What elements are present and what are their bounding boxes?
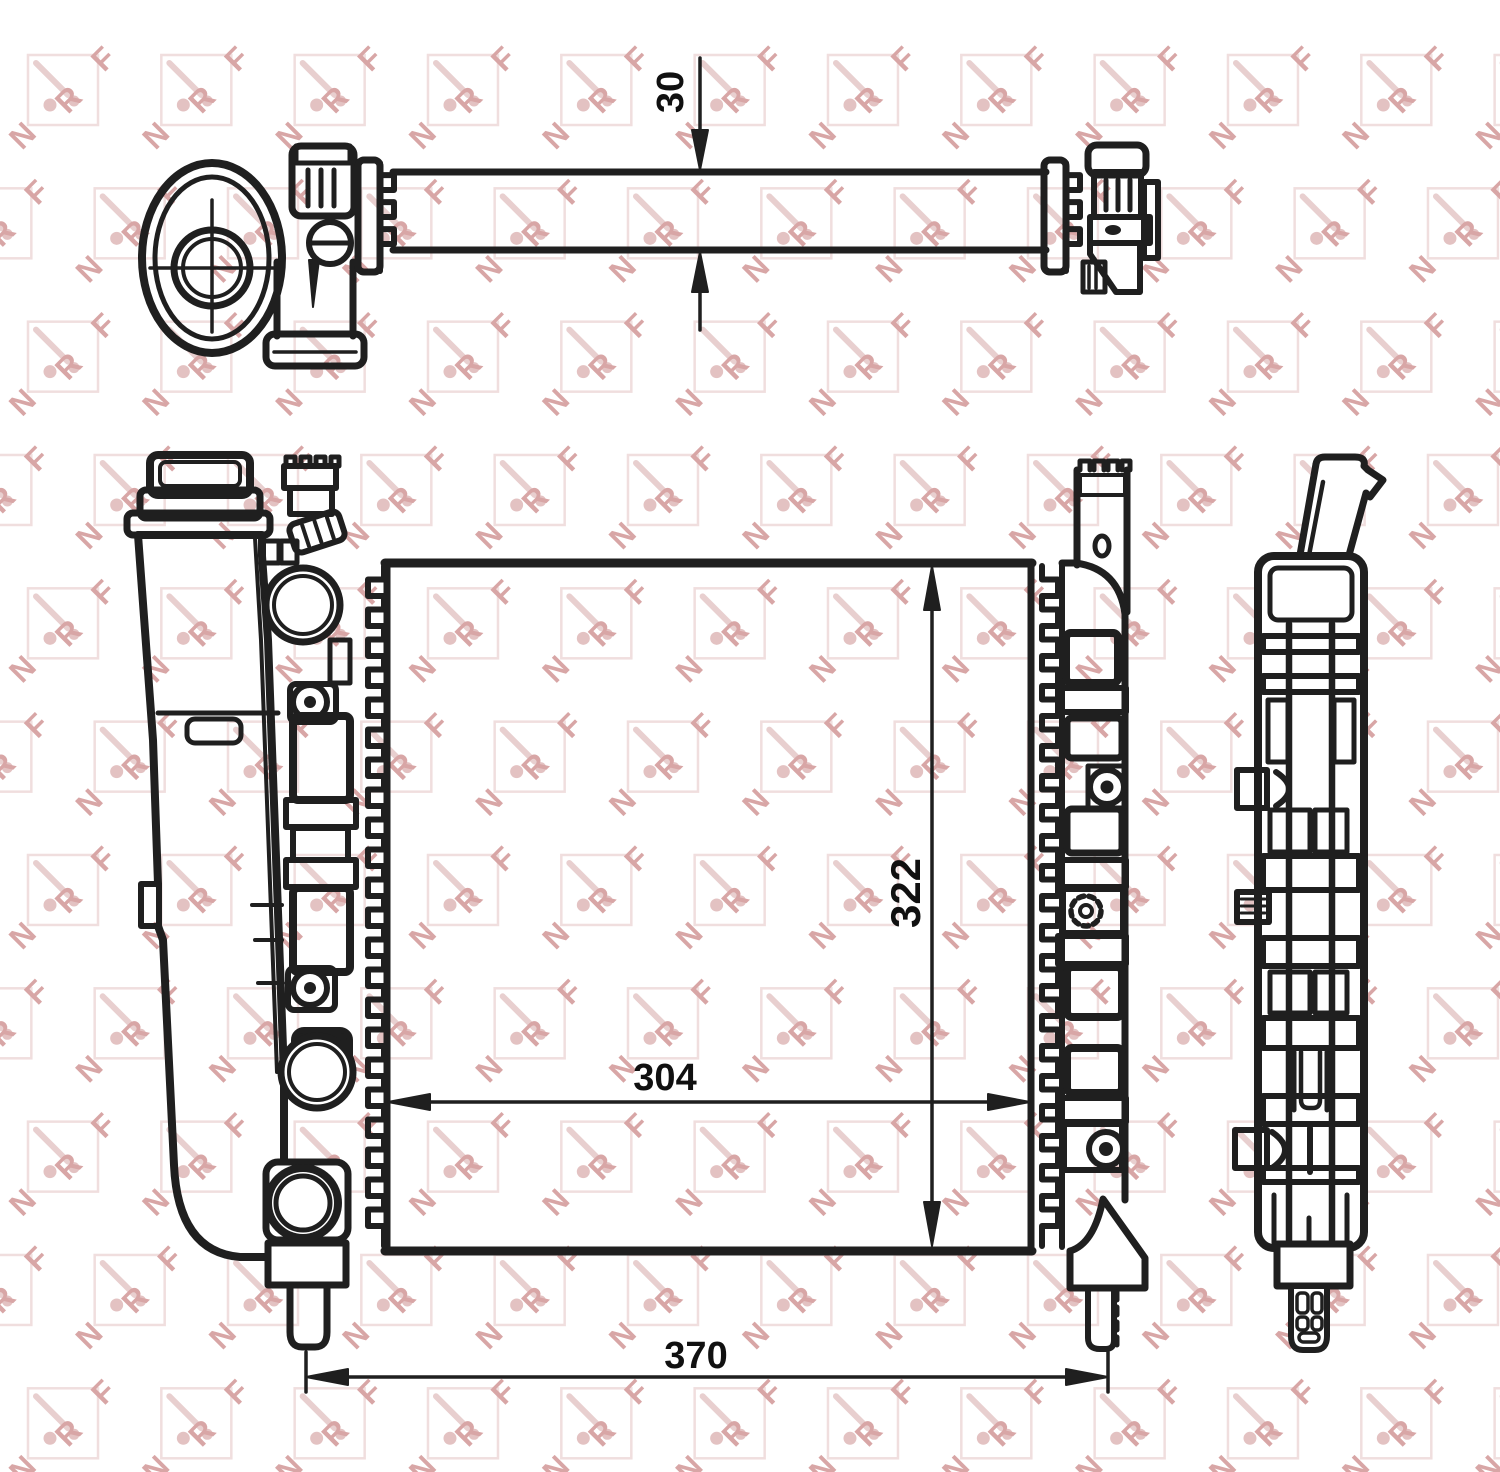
watermark-tile bbox=[1069, 1373, 1189, 1472]
watermark-tile bbox=[469, 1240, 589, 1356]
watermark-tile bbox=[536, 40, 656, 156]
watermark-tile bbox=[402, 1106, 522, 1222]
watermark-tile bbox=[136, 306, 256, 422]
arrow-down-icon bbox=[924, 1202, 940, 1246]
watermark-tile bbox=[0, 973, 56, 1089]
watermark-tile bbox=[936, 573, 1056, 689]
watermark-tile bbox=[869, 706, 989, 822]
watermark-tile bbox=[736, 440, 856, 556]
watermark-tile bbox=[536, 1106, 656, 1222]
watermark-tile bbox=[869, 173, 989, 289]
arrow-up-icon bbox=[924, 566, 940, 610]
watermark-tile bbox=[669, 306, 789, 422]
watermark-tile bbox=[1336, 306, 1456, 422]
watermark-tile bbox=[736, 173, 856, 289]
arrow-right-icon bbox=[1066, 1369, 1108, 1385]
radiator-technical-drawing-page: N R F bbox=[0, 0, 1500, 1472]
watermark-tile bbox=[1469, 1106, 1500, 1222]
watermark-tile bbox=[136, 1373, 256, 1472]
watermark-tile bbox=[136, 40, 256, 156]
watermark-tile bbox=[1402, 973, 1500, 1089]
watermark-tile bbox=[869, 440, 989, 556]
right-pin bbox=[1088, 1288, 1114, 1349]
watermark-tile bbox=[402, 840, 522, 956]
watermark-tile bbox=[1136, 973, 1256, 1089]
watermark-tile bbox=[0, 1240, 56, 1356]
watermark-tile bbox=[736, 706, 856, 822]
side-foot-plate bbox=[1277, 1244, 1350, 1286]
watermark-tile bbox=[869, 973, 989, 1089]
watermark-tile bbox=[469, 973, 589, 1089]
arrow-left-icon bbox=[388, 1094, 430, 1110]
watermark-tile bbox=[1469, 306, 1500, 422]
watermark-tile bbox=[1469, 840, 1500, 956]
watermark-tile bbox=[336, 1240, 456, 1356]
watermark-tile bbox=[2, 1106, 122, 1222]
watermark-tile bbox=[536, 1373, 656, 1472]
watermark-tile bbox=[669, 573, 789, 689]
watermark-tile bbox=[2, 40, 122, 156]
watermark-tile bbox=[269, 1373, 389, 1472]
watermark-tile bbox=[869, 1240, 989, 1356]
watermark-tile bbox=[1336, 1373, 1456, 1472]
watermark-tile bbox=[936, 40, 1056, 156]
dimension-depth-label: 30 bbox=[650, 71, 692, 113]
outlet-funnel bbox=[1070, 1199, 1145, 1288]
watermark-tile bbox=[336, 440, 456, 556]
watermark-tile bbox=[536, 306, 656, 422]
watermark-tile bbox=[136, 1106, 256, 1222]
arrow-right-icon bbox=[988, 1094, 1030, 1110]
watermark-tile bbox=[802, 1373, 922, 1472]
watermark-tile bbox=[136, 573, 256, 689]
watermark-tile bbox=[69, 706, 189, 822]
watermark-tile bbox=[1136, 1240, 1256, 1356]
watermark-tile bbox=[402, 306, 522, 422]
watermark-tile bbox=[536, 573, 656, 689]
watermark-tile bbox=[2, 306, 122, 422]
watermark-tile bbox=[69, 1240, 189, 1356]
watermark-tile bbox=[2, 840, 122, 956]
watermark-tile bbox=[936, 840, 1056, 956]
watermark-tile bbox=[936, 1106, 1056, 1222]
watermark-tile bbox=[802, 573, 922, 689]
watermark-tile bbox=[1069, 40, 1189, 156]
watermark-tile bbox=[736, 1240, 856, 1356]
dimension-core-height: 322 bbox=[882, 566, 940, 1246]
watermark-tile bbox=[469, 440, 589, 556]
watermark-tile bbox=[936, 306, 1056, 422]
watermark-tile bbox=[602, 706, 722, 822]
watermark-tile bbox=[1202, 306, 1322, 422]
watermark-tile bbox=[936, 1373, 1056, 1472]
watermark-tile bbox=[1202, 1373, 1322, 1472]
watermark-tile bbox=[1402, 440, 1500, 556]
watermark-tile bbox=[1136, 440, 1256, 556]
watermark-tile bbox=[402, 573, 522, 689]
watermark-tile bbox=[402, 40, 522, 156]
watermark-tile bbox=[802, 1106, 922, 1222]
arrow-left-icon bbox=[306, 1369, 348, 1385]
watermark-tile bbox=[1469, 40, 1500, 156]
watermark-tile bbox=[736, 973, 856, 1089]
side-view bbox=[1235, 457, 1383, 1350]
watermark-tile bbox=[1336, 40, 1456, 156]
dimension-overall-width: 370 bbox=[306, 1335, 1108, 1392]
watermark-tile bbox=[2, 1373, 122, 1472]
watermark-tile bbox=[802, 306, 922, 422]
watermark-tile bbox=[669, 840, 789, 956]
watermark-tile bbox=[1469, 1373, 1500, 1472]
watermark-tile bbox=[2, 573, 122, 689]
drain-port bbox=[281, 1036, 353, 1108]
watermark-tile bbox=[602, 440, 722, 556]
watermark-tile bbox=[269, 40, 389, 156]
watermark-tile bbox=[1069, 306, 1189, 422]
watermark-tile bbox=[1136, 173, 1256, 289]
radiator-technical-drawing: N R F bbox=[0, 0, 1500, 1472]
watermark-tile bbox=[1402, 173, 1500, 289]
watermark-tile bbox=[0, 440, 56, 556]
inlet-hose-clamp bbox=[292, 146, 354, 307]
watermark-tile bbox=[802, 40, 922, 156]
watermark-tile bbox=[469, 173, 589, 289]
left-pin-base bbox=[268, 1243, 346, 1285]
right-serrated-seam bbox=[1042, 566, 1058, 1246]
upper-hose-port bbox=[266, 568, 340, 642]
dimension-overall-width-label: 370 bbox=[664, 1335, 727, 1377]
dimension-core-width-label: 304 bbox=[633, 1057, 696, 1099]
watermark-tile bbox=[669, 1373, 789, 1472]
watermark-tile bbox=[669, 1106, 789, 1222]
watermark-tile bbox=[1202, 40, 1322, 156]
watermark-tile bbox=[1269, 173, 1389, 289]
clamp-spike bbox=[309, 260, 319, 307]
watermark-tile bbox=[402, 1373, 522, 1472]
watermark-tile bbox=[1402, 1240, 1500, 1356]
watermark-tile bbox=[1469, 573, 1500, 689]
watermark-tile bbox=[0, 173, 56, 289]
left-pin bbox=[290, 1285, 327, 1347]
watermark-tile bbox=[0, 706, 56, 822]
tube-left-connector bbox=[358, 160, 394, 272]
dimension-core-height-label: 322 bbox=[882, 858, 929, 928]
watermark-tile bbox=[536, 840, 656, 956]
watermark-tile bbox=[469, 706, 589, 822]
watermark-tile bbox=[1402, 706, 1500, 822]
